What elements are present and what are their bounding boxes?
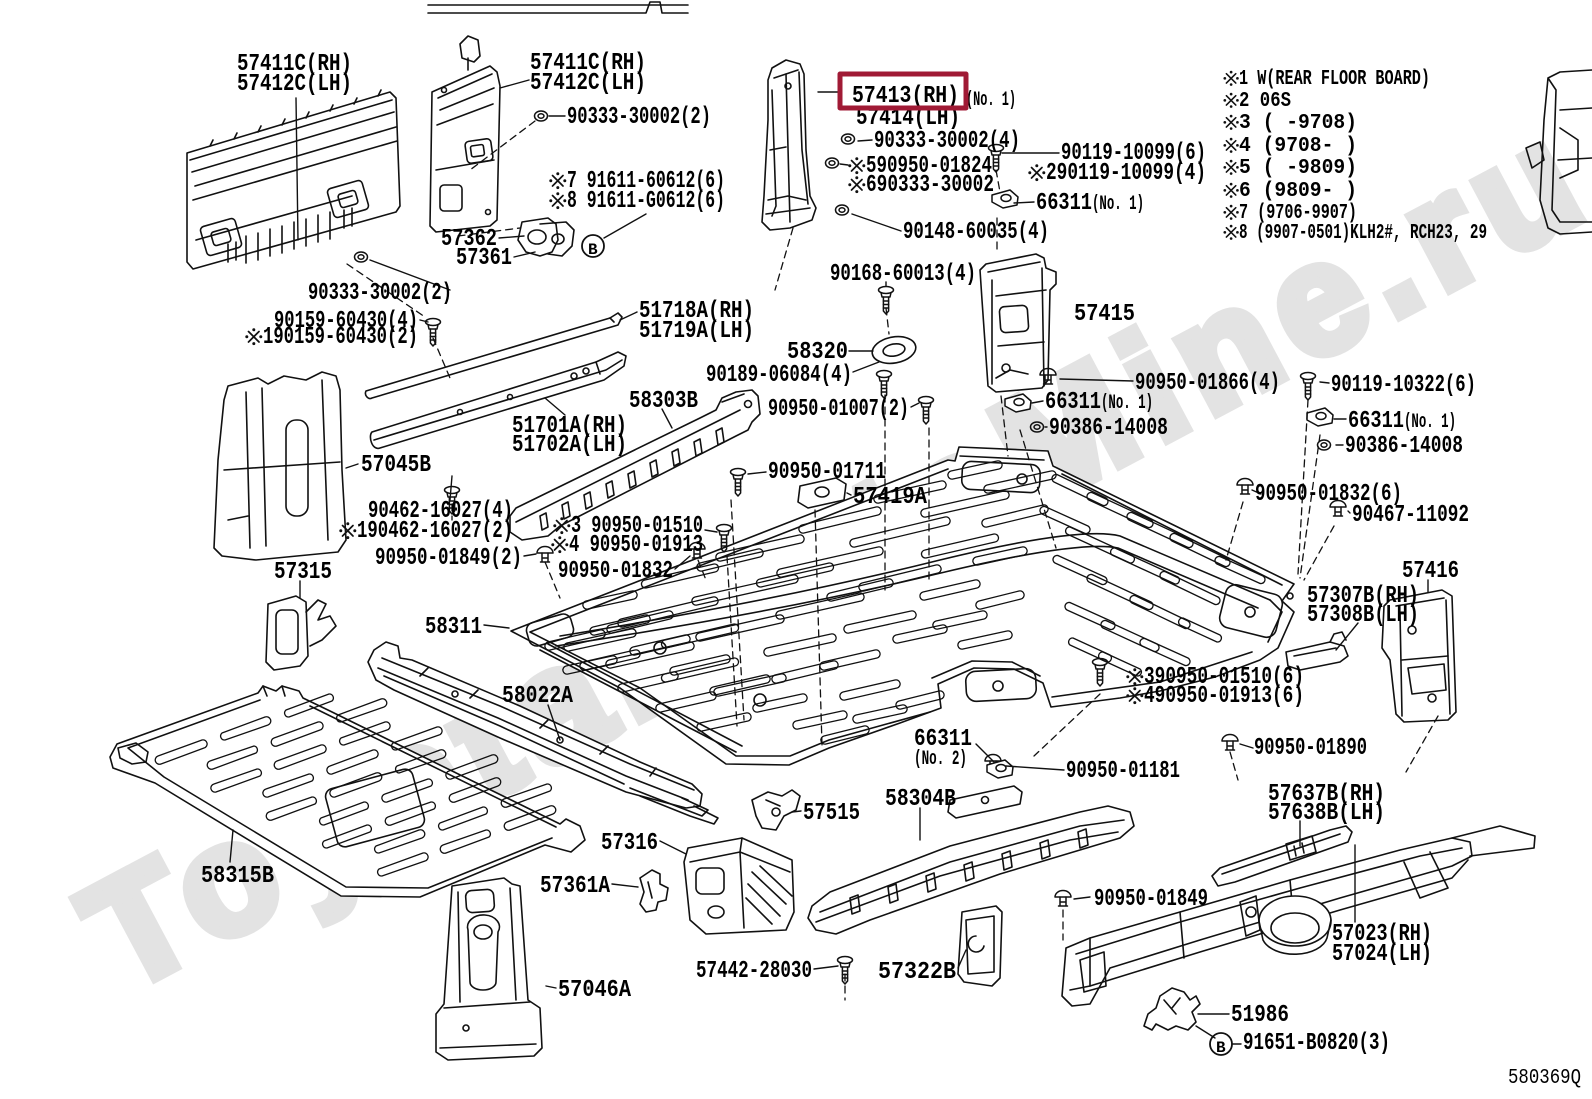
svg-text:(No. 1): (No. 1) bbox=[1404, 411, 1456, 434]
svg-text:58315B: 58315B bbox=[201, 863, 274, 890]
svg-text:290119-10099(4): 290119-10099(4) bbox=[1046, 160, 1206, 187]
svg-text:66311: 66311 bbox=[1045, 389, 1101, 416]
svg-text:90950-01866(4): 90950-01866(4) bbox=[1135, 370, 1280, 397]
svg-text:57419A: 57419A bbox=[853, 484, 928, 511]
svg-text:66311: 66311 bbox=[1348, 408, 1404, 435]
svg-text:57638B(LH): 57638B(LH) bbox=[1268, 800, 1385, 827]
svg-text:51702A(LH): 51702A(LH) bbox=[512, 432, 627, 459]
svg-text:57322B: 57322B bbox=[878, 959, 956, 986]
svg-text:57361: 57361 bbox=[456, 245, 512, 272]
svg-text:57024(LH): 57024(LH) bbox=[1332, 941, 1432, 968]
svg-text:690333-30002: 690333-30002 bbox=[866, 172, 994, 199]
svg-text:6 (9809- ): 6 (9809- ) bbox=[1239, 180, 1357, 203]
svg-text:90950-01890: 90950-01890 bbox=[1254, 735, 1367, 762]
svg-text:57412C(LH): 57412C(LH) bbox=[530, 70, 646, 97]
svg-text:190159-60430(2): 190159-60430(2) bbox=[263, 324, 418, 351]
svg-text:57045B: 57045B bbox=[361, 452, 431, 479]
svg-text:90950-01007(2): 90950-01007(2) bbox=[768, 396, 909, 423]
svg-text:3 ( -9708): 3 ( -9708) bbox=[1239, 112, 1357, 135]
svg-text:90467-11092: 90467-11092 bbox=[1352, 502, 1469, 529]
svg-text:57361A: 57361A bbox=[540, 873, 610, 900]
svg-text:90950-01832: 90950-01832 bbox=[558, 558, 673, 585]
svg-text:90950-01849: 90950-01849 bbox=[1094, 886, 1208, 913]
svg-text:91651-B0820(3): 91651-B0820(3) bbox=[1243, 1030, 1390, 1057]
svg-text:B: B bbox=[1216, 1039, 1226, 1057]
svg-text:58311: 58311 bbox=[425, 614, 482, 641]
svg-text:51986: 51986 bbox=[1231, 1002, 1289, 1029]
svg-text:90119-10322(6): 90119-10322(6) bbox=[1331, 372, 1476, 399]
svg-text:190462-16027(2): 190462-16027(2) bbox=[357, 518, 513, 545]
svg-text:57046A: 57046A bbox=[558, 977, 631, 1004]
svg-text:(No. 2): (No. 2) bbox=[914, 748, 967, 771]
svg-text:90950-01711: 90950-01711 bbox=[768, 459, 886, 486]
svg-text:58304B: 58304B bbox=[885, 786, 956, 813]
svg-text:90386-14008: 90386-14008 bbox=[1049, 415, 1168, 442]
svg-text:66311: 66311 bbox=[1036, 190, 1092, 217]
svg-text:8 91611-G0612(6): 8 91611-G0612(6) bbox=[567, 188, 725, 215]
svg-text:4 90950-01913: 4 90950-01913 bbox=[569, 532, 703, 559]
svg-text:57416: 57416 bbox=[1402, 558, 1459, 585]
svg-text:(No. 1): (No. 1) bbox=[966, 89, 1016, 112]
svg-text:57442-28030: 57442-28030 bbox=[696, 958, 812, 985]
svg-text:90950-01849(2): 90950-01849(2) bbox=[375, 545, 522, 572]
svg-text:58303B: 58303B bbox=[629, 388, 698, 415]
svg-text:90333-30002(4): 90333-30002(4) bbox=[874, 128, 1020, 155]
svg-text:57308B(LH): 57308B(LH) bbox=[1307, 602, 1419, 629]
svg-text:58022A: 58022A bbox=[502, 683, 573, 710]
svg-text:8 (9907-0501)KLH2#, RCH23, 29: 8 (9907-0501)KLH2#, RCH23, 29 bbox=[1239, 222, 1487, 245]
svg-text:90148-60035(4): 90148-60035(4) bbox=[903, 219, 1049, 246]
svg-text:90168-60013(4): 90168-60013(4) bbox=[830, 261, 976, 288]
svg-text:4 (9708- ): 4 (9708- ) bbox=[1239, 135, 1357, 158]
svg-text:57412C(LH): 57412C(LH) bbox=[237, 71, 352, 98]
svg-text:2 06S: 2 06S bbox=[1239, 90, 1291, 113]
svg-text:90333-30002(2): 90333-30002(2) bbox=[308, 280, 452, 307]
svg-text:490950-01913(6): 490950-01913(6) bbox=[1144, 683, 1304, 710]
svg-text:5 ( -9809): 5 ( -9809) bbox=[1239, 157, 1357, 180]
svg-text:90386-14008: 90386-14008 bbox=[1345, 433, 1463, 460]
svg-text:57315: 57315 bbox=[274, 559, 332, 586]
svg-text:B: B bbox=[588, 241, 598, 259]
svg-text:57515: 57515 bbox=[803, 800, 860, 827]
svg-text:51719A(LH): 51719A(LH) bbox=[639, 318, 754, 345]
svg-text:57316: 57316 bbox=[601, 830, 658, 857]
svg-text:580369Q: 580369Q bbox=[1508, 1067, 1581, 1090]
svg-text:(No. 1): (No. 1) bbox=[1101, 392, 1153, 415]
svg-text:1 W(REAR FLOOR BOARD): 1 W(REAR FLOOR BOARD) bbox=[1239, 68, 1430, 91]
svg-text:90333-30002(2): 90333-30002(2) bbox=[567, 104, 711, 131]
svg-text:90950-01181: 90950-01181 bbox=[1066, 758, 1180, 785]
svg-text:(No. 1): (No. 1) bbox=[1092, 193, 1144, 216]
svg-text:57415: 57415 bbox=[1074, 301, 1135, 328]
svg-text:90189-06084(4): 90189-06084(4) bbox=[706, 362, 852, 389]
